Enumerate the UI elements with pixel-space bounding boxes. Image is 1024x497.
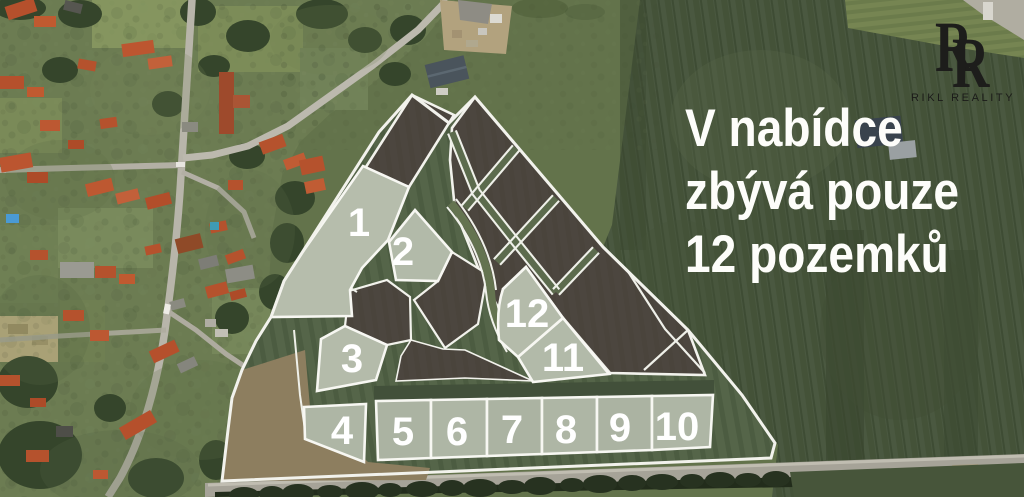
svg-text:1: 1 [348, 201, 370, 245]
svg-text:V nabídce: V nabídce [685, 98, 903, 158]
svg-text:zbývá pouze: zbývá pouze [685, 161, 959, 221]
svg-text:8: 8 [555, 408, 577, 452]
svg-text:4: 4 [331, 409, 354, 453]
svg-text:7: 7 [501, 408, 523, 452]
svg-text:5: 5 [392, 410, 414, 454]
svg-text:12 pozemků: 12 pozemků [685, 224, 949, 284]
svg-text:6: 6 [446, 410, 468, 454]
svg-text:10: 10 [655, 405, 700, 449]
svg-text:12: 12 [505, 292, 550, 336]
svg-text:11: 11 [542, 336, 584, 380]
svg-text:2: 2 [392, 230, 414, 274]
svg-text:9: 9 [609, 406, 631, 450]
svg-text:RIKL REALITY: RIKL REALITY [911, 92, 1015, 104]
svg-text:3: 3 [341, 337, 363, 381]
